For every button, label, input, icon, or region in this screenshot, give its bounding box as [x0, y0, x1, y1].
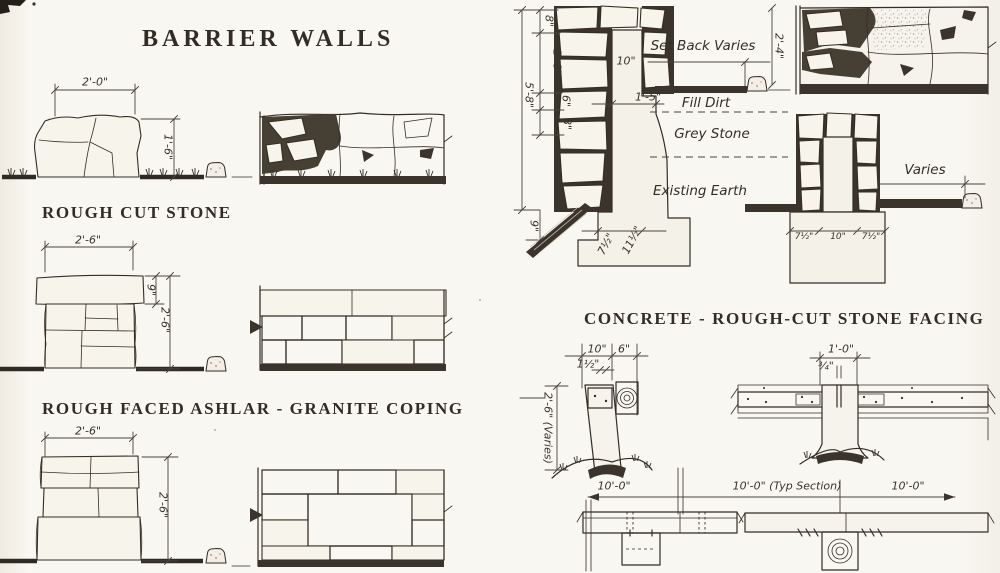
- dim-6in-rail: 6": [618, 343, 630, 356]
- dim-1ft6: 1'-6": [162, 134, 175, 160]
- barrier-walls-sheet: BARRIER WALLS ROUGH CUT STONE ROUGH FACE…: [0, 0, 1000, 573]
- dim-2ft4: 2'-4": [773, 33, 786, 59]
- dim-9in-footing: 9": [528, 220, 541, 232]
- dim-10in-core: 10": [616, 55, 635, 68]
- note-fill-dirt: Fill Dirt: [682, 95, 730, 111]
- caption-rough-faced-ashlar: ROUGH FACED ASHLAR - GRANITE COPING: [42, 399, 464, 419]
- plan-views: [577, 418, 994, 571]
- page-title: BARRIER WALLS: [142, 26, 394, 53]
- concrete-wall-section-2: [745, 113, 985, 283]
- caption-concrete-stone-facing: CONCRETE - ROUGH-CUT STONE FACING: [584, 309, 984, 329]
- dim-8in-bot: 8": [561, 118, 574, 130]
- ashlar-coping-section: [0, 241, 226, 373]
- note-set-back-varies: Set Back Varies: [651, 38, 756, 54]
- dim-varies: Varies: [904, 162, 945, 178]
- dim-10ft0-left: 10'-0": [597, 480, 630, 493]
- dim-8in-top: 8": [543, 15, 556, 27]
- rough-cut-stone-section: [2, 84, 252, 181]
- note-existing-earth: Existing Earth: [653, 183, 747, 199]
- dim-2ft6-d: 2'-6": [157, 492, 170, 518]
- concrete-wall-elevation: [796, 6, 996, 94]
- dim-2ft0: 2'-0": [82, 76, 108, 89]
- caption-rough-cut-stone: ROUGH CUT STONE: [42, 203, 232, 223]
- dim-foot-7half-a: 7½": [795, 232, 814, 242]
- dim-1ft8: 1'-8": [551, 49, 564, 75]
- dim-1half: 1½": [577, 358, 600, 371]
- dim-1ft0: 1'-0": [828, 343, 854, 356]
- ashlar-coping-elevation: [250, 286, 452, 371]
- dim-5ft8: 5'-8": [523, 82, 536, 108]
- timber-rail-detail: [731, 352, 995, 464]
- dim-2ft6-a: 2'-6": [75, 234, 101, 247]
- dim-2ft6-c: 2'-6": [75, 425, 101, 438]
- rough-cut-stone-elevation: [260, 112, 452, 184]
- dim-3quarter: ¾": [818, 360, 834, 373]
- dim-10ft0-typ: 10'-0" (Typ Section): [733, 480, 842, 493]
- dim-foot-7half-b: 7½": [862, 232, 881, 242]
- note-grey-stone: Grey Stone: [674, 126, 750, 142]
- dim-9in: 9": [145, 284, 158, 296]
- dim-10in-post: 10": [587, 343, 606, 356]
- dim-foot-10: 10": [830, 232, 846, 242]
- dim-10ft0-right: 10'-0": [891, 480, 924, 493]
- dim-2ft6-b: 2'-6": [159, 307, 172, 333]
- dim-6in: 6": [560, 95, 573, 107]
- ashlar-section-2: [0, 432, 250, 566]
- dim-2ft6-varies: 2'-6" (Varies): [542, 392, 555, 464]
- ashlar-elevation-2: [250, 468, 452, 567]
- dim-1ft5: 1'-5": [635, 91, 661, 104]
